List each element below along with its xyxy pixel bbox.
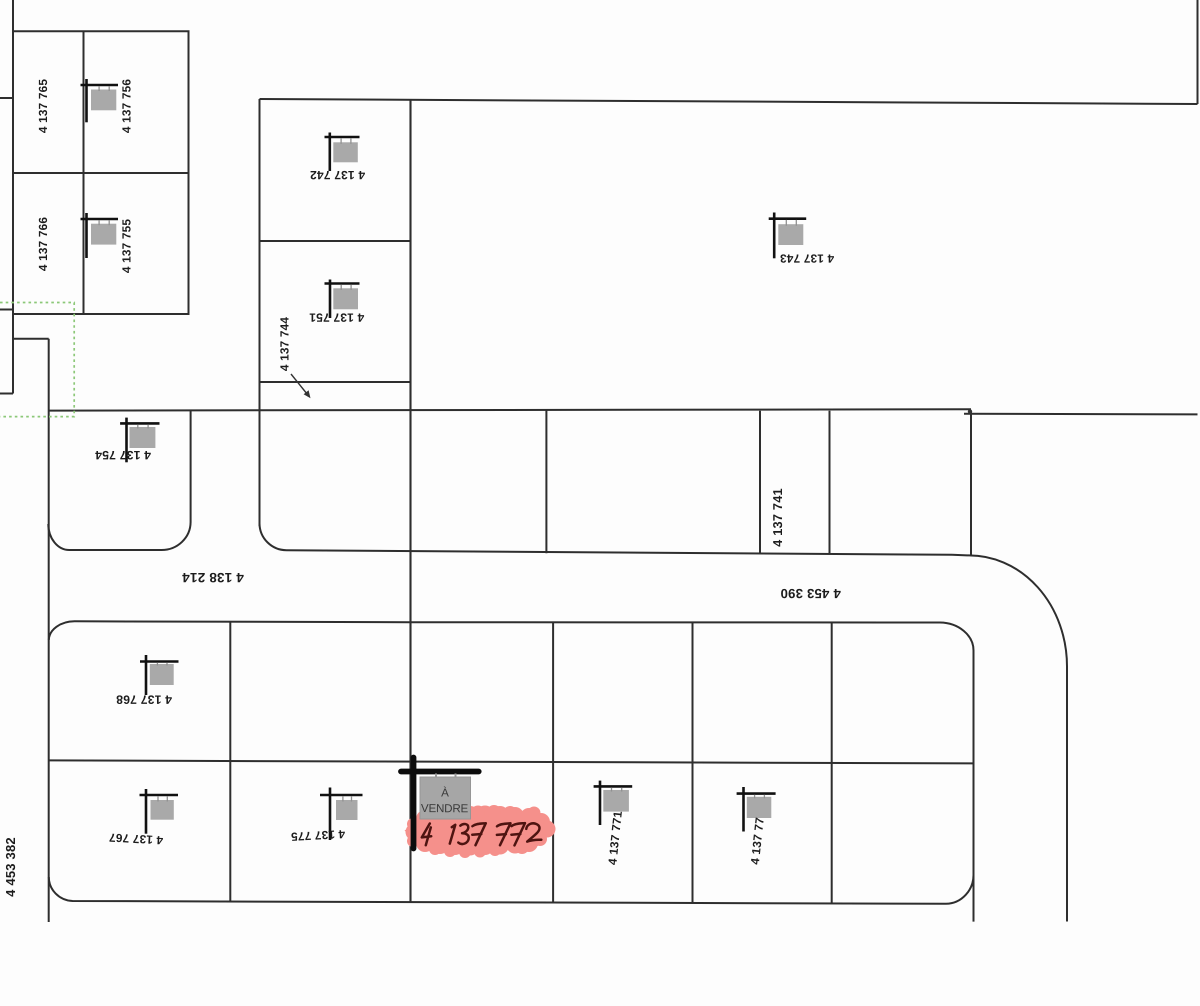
svg-text:À: À [441, 785, 449, 799]
svg-text:4 137 754: 4 137 754 [95, 448, 151, 462]
svg-text:VENDRE: VENDRE [421, 802, 469, 815]
svg-text:4 137 743: 4 137 743 [780, 251, 835, 265]
svg-text:4 137 771: 4 137 771 [605, 810, 625, 866]
svg-text:4 453 382: 4 453 382 [3, 837, 18, 897]
svg-text:4 137 744: 4 137 744 [278, 317, 292, 372]
svg-text:4 137 766: 4 137 766 [36, 217, 50, 272]
svg-text:4 137 775: 4 137 775 [290, 827, 345, 844]
svg-text:4 137 742: 4 137 742 [310, 168, 365, 182]
svg-text:4 137 765: 4 137 765 [36, 79, 50, 134]
svg-text:4 453 390: 4 453 390 [780, 586, 840, 601]
svg-text:4 138 214: 4 138 214 [182, 570, 244, 585]
svg-text:4 137 767: 4 137 767 [108, 830, 163, 847]
svg-text:4 137 768: 4 137 768 [116, 693, 172, 707]
svg-text:4 137 77: 4 137 77 [748, 816, 767, 865]
svg-text:4 137 755: 4 137 755 [120, 219, 134, 274]
svg-text:4 137 751: 4 137 751 [309, 311, 364, 325]
svg-text:4 137 756: 4 137 756 [120, 79, 134, 134]
svg-text:4 137 741: 4 137 741 [770, 488, 785, 547]
